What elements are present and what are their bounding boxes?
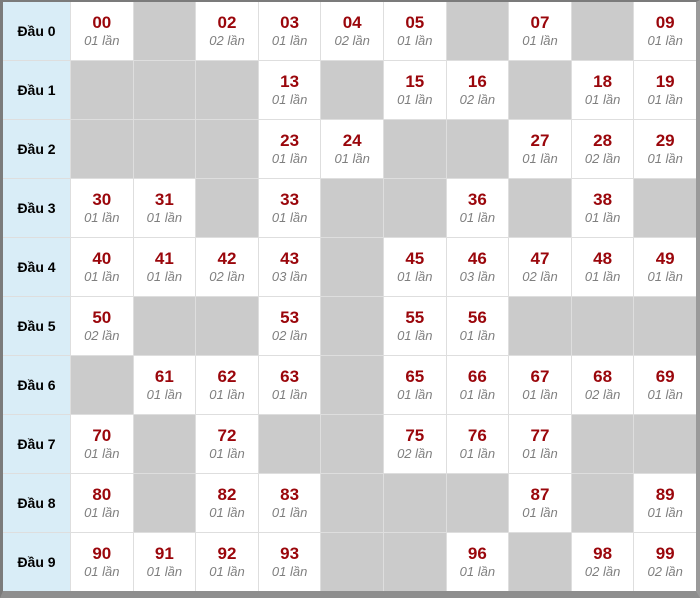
- occurrence-count: 01 lần: [585, 92, 620, 109]
- number-value: 61: [155, 366, 174, 387]
- number-cell-16: 1602 lần: [447, 61, 509, 119]
- occurrence-count: 01 lần: [209, 387, 244, 404]
- number-value: 53: [280, 307, 299, 328]
- number-value: 49: [656, 248, 675, 269]
- number-cell-90: 9001 lần: [71, 533, 133, 591]
- empty-cell: [509, 179, 571, 237]
- number-cell-82: 8201 lần: [196, 474, 258, 532]
- number-cell-46: 4603 lần: [447, 238, 509, 296]
- occurrence-count: 01 lần: [209, 564, 244, 581]
- occurrence-count: 01 lần: [397, 387, 432, 404]
- empty-cell: [321, 356, 383, 414]
- number-value: 77: [531, 425, 550, 446]
- empty-cell: [321, 179, 383, 237]
- number-cell-77: 7701 lần: [509, 415, 571, 473]
- number-value: 46: [468, 248, 487, 269]
- row-header-dau-7: Đầu 7: [3, 415, 70, 473]
- occurrence-count: 02 lần: [522, 269, 557, 286]
- empty-cell: [196, 120, 258, 178]
- occurrence-count: 01 lần: [84, 446, 119, 463]
- empty-cell: [259, 415, 321, 473]
- number-cell-76: 7601 lần: [447, 415, 509, 473]
- number-value: 05: [405, 12, 424, 33]
- number-cell-31: 3101 lần: [134, 179, 196, 237]
- number-cell-33: 3301 lần: [259, 179, 321, 237]
- number-value: 98: [593, 543, 612, 564]
- empty-cell: [196, 297, 258, 355]
- number-value: 33: [280, 189, 299, 210]
- empty-cell: [572, 415, 634, 473]
- number-cell-72: 7201 lần: [196, 415, 258, 473]
- number-value: 16: [468, 71, 487, 92]
- empty-cell: [321, 533, 383, 591]
- empty-cell: [321, 474, 383, 532]
- number-cell-98: 9802 lần: [572, 533, 634, 591]
- empty-cell: [134, 120, 196, 178]
- occurrence-count: 02 lần: [397, 446, 432, 463]
- number-value: 67: [531, 366, 550, 387]
- number-cell-91: 9101 lần: [134, 533, 196, 591]
- occurrence-count: 01 lần: [397, 269, 432, 286]
- occurrence-count: 01 lần: [522, 446, 557, 463]
- empty-cell: [71, 120, 133, 178]
- number-value: 36: [468, 189, 487, 210]
- number-value: 96: [468, 543, 487, 564]
- number-value: 38: [593, 189, 612, 210]
- empty-cell: [134, 474, 196, 532]
- occurrence-count: 02 lần: [334, 33, 369, 50]
- number-value: 92: [218, 543, 237, 564]
- occurrence-count: 02 lần: [585, 387, 620, 404]
- number-value: 31: [155, 189, 174, 210]
- number-cell-56: 5601 lần: [447, 297, 509, 355]
- number-value: 70: [92, 425, 111, 446]
- row-header-dau-6: Đầu 6: [3, 356, 70, 414]
- number-value: 66: [468, 366, 487, 387]
- empty-cell: [634, 179, 696, 237]
- occurrence-count: 01 lần: [460, 564, 495, 581]
- empty-cell: [134, 297, 196, 355]
- number-cell-02: 0202 lần: [196, 2, 258, 60]
- number-cell-61: 6101 lần: [134, 356, 196, 414]
- occurrence-count: 01 lần: [84, 210, 119, 227]
- number-cell-04: 0402 lần: [321, 2, 383, 60]
- number-cell-48: 4801 lần: [572, 238, 634, 296]
- number-cell-47: 4702 lần: [509, 238, 571, 296]
- empty-cell: [384, 474, 446, 532]
- empty-cell: [321, 238, 383, 296]
- number-cell-63: 6301 lần: [259, 356, 321, 414]
- empty-cell: [509, 61, 571, 119]
- number-cell-89: 8901 lần: [634, 474, 696, 532]
- empty-cell: [321, 415, 383, 473]
- occurrence-count: 01 lần: [522, 505, 557, 522]
- number-value: 90: [92, 543, 111, 564]
- number-value: 76: [468, 425, 487, 446]
- occurrence-count: 01 lần: [647, 269, 682, 286]
- occurrence-count: 01 lần: [522, 387, 557, 404]
- empty-cell: [321, 61, 383, 119]
- number-value: 00: [92, 12, 111, 33]
- number-value: 27: [531, 130, 550, 151]
- row-header-dau-8: Đầu 8: [3, 474, 70, 532]
- number-cell-80: 8001 lần: [71, 474, 133, 532]
- number-cell-87: 8701 lần: [509, 474, 571, 532]
- occurrence-count: 01 lần: [84, 33, 119, 50]
- number-cell-23: 2301 lần: [259, 120, 321, 178]
- occurrence-count: 01 lần: [147, 269, 182, 286]
- number-value: 15: [405, 71, 424, 92]
- occurrence-count: 01 lần: [460, 387, 495, 404]
- number-value: 50: [92, 307, 111, 328]
- empty-cell: [384, 533, 446, 591]
- number-value: 23: [280, 130, 299, 151]
- occurrence-count: 01 lần: [460, 210, 495, 227]
- row-header-dau-5: Đầu 5: [3, 297, 70, 355]
- empty-cell: [509, 533, 571, 591]
- empty-cell: [134, 415, 196, 473]
- number-cell-53: 5302 lần: [259, 297, 321, 355]
- lottery-frequency-table-frame: Đầu 00001 lần0202 lần0301 lần0402 lần050…: [0, 0, 700, 598]
- occurrence-count: 02 lần: [585, 564, 620, 581]
- number-value: 68: [593, 366, 612, 387]
- occurrence-count: 01 lần: [647, 505, 682, 522]
- number-value: 83: [280, 484, 299, 505]
- occurrence-count: 01 lần: [147, 387, 182, 404]
- number-value: 69: [656, 366, 675, 387]
- number-value: 75: [405, 425, 424, 446]
- row-header-dau-1: Đầu 1: [3, 61, 70, 119]
- number-value: 91: [155, 543, 174, 564]
- occurrence-count: 01 lần: [522, 33, 557, 50]
- empty-cell: [134, 2, 196, 60]
- number-value: 80: [92, 484, 111, 505]
- row-header-dau-2: Đầu 2: [3, 120, 70, 178]
- number-cell-66: 6601 lần: [447, 356, 509, 414]
- number-cell-93: 9301 lần: [259, 533, 321, 591]
- row-header-dau-4: Đầu 4: [3, 238, 70, 296]
- occurrence-count: 01 lần: [272, 505, 307, 522]
- number-cell-92: 9201 lần: [196, 533, 258, 591]
- number-value: 19: [656, 71, 675, 92]
- number-cell-45: 4501 lần: [384, 238, 446, 296]
- occurrence-count: 01 lần: [585, 269, 620, 286]
- empty-cell: [447, 120, 509, 178]
- occurrence-count: 01 lần: [209, 446, 244, 463]
- number-cell-00: 0001 lần: [71, 2, 133, 60]
- number-cell-07: 0701 lần: [509, 2, 571, 60]
- number-value: 02: [218, 12, 237, 33]
- occurrence-count: 01 lần: [272, 151, 307, 168]
- number-cell-30: 3001 lần: [71, 179, 133, 237]
- row-header-dau-0: Đầu 0: [3, 2, 70, 60]
- occurrence-count: 01 lần: [272, 92, 307, 109]
- number-value: 40: [92, 248, 111, 269]
- occurrence-count: 02 lần: [272, 328, 307, 345]
- number-value: 87: [531, 484, 550, 505]
- number-value: 45: [405, 248, 424, 269]
- empty-cell: [384, 179, 446, 237]
- number-cell-05: 0501 lần: [384, 2, 446, 60]
- occurrence-count: 01 lần: [272, 210, 307, 227]
- empty-cell: [634, 415, 696, 473]
- occurrence-count: 01 lần: [84, 564, 119, 581]
- number-cell-65: 6501 lần: [384, 356, 446, 414]
- number-cell-18: 1801 lần: [572, 61, 634, 119]
- occurrence-count: 01 lần: [147, 210, 182, 227]
- empty-cell: [509, 297, 571, 355]
- occurrence-count: 01 lần: [272, 33, 307, 50]
- occurrence-count: 01 lần: [647, 151, 682, 168]
- number-cell-36: 3601 lần: [447, 179, 509, 237]
- number-cell-68: 6802 lần: [572, 356, 634, 414]
- number-cell-29: 2901 lần: [634, 120, 696, 178]
- number-value: 28: [593, 130, 612, 151]
- number-cell-50: 5002 lần: [71, 297, 133, 355]
- number-value: 41: [155, 248, 174, 269]
- number-cell-83: 8301 lần: [259, 474, 321, 532]
- number-cell-41: 4101 lần: [134, 238, 196, 296]
- number-value: 62: [218, 366, 237, 387]
- empty-cell: [71, 356, 133, 414]
- number-cell-55: 5501 lần: [384, 297, 446, 355]
- number-value: 55: [405, 307, 424, 328]
- occurrence-count: 01 lần: [647, 92, 682, 109]
- number-cell-24: 2401 lần: [321, 120, 383, 178]
- number-value: 89: [656, 484, 675, 505]
- number-value: 43: [280, 248, 299, 269]
- number-cell-62: 6201 lần: [196, 356, 258, 414]
- occurrence-count: 02 lần: [84, 328, 119, 345]
- empty-cell: [572, 2, 634, 60]
- occurrence-count: 01 lần: [84, 269, 119, 286]
- occurrence-count: 01 lần: [334, 151, 369, 168]
- empty-cell: [572, 474, 634, 532]
- empty-cell: [572, 297, 634, 355]
- occurrence-count: 02 lần: [209, 33, 244, 50]
- number-cell-75: 7502 lần: [384, 415, 446, 473]
- occurrence-count: 02 lần: [647, 564, 682, 581]
- row-header-dau-3: Đầu 3: [3, 179, 70, 237]
- number-value: 72: [218, 425, 237, 446]
- number-value: 18: [593, 71, 612, 92]
- number-cell-70: 7001 lần: [71, 415, 133, 473]
- number-cell-38: 3801 lần: [572, 179, 634, 237]
- number-value: 65: [405, 366, 424, 387]
- occurrence-count: 01 lần: [147, 564, 182, 581]
- occurrence-count: 01 lần: [397, 92, 432, 109]
- occurrence-count: 01 lần: [84, 505, 119, 522]
- number-cell-67: 6701 lần: [509, 356, 571, 414]
- occurrence-count: 01 lần: [397, 328, 432, 345]
- number-cell-99: 9902 lần: [634, 533, 696, 591]
- occurrence-count: 02 lần: [209, 269, 244, 286]
- occurrence-count: 02 lần: [585, 151, 620, 168]
- occurrence-count: 01 lần: [647, 33, 682, 50]
- number-value: 56: [468, 307, 487, 328]
- empty-cell: [196, 179, 258, 237]
- number-value: 99: [656, 543, 675, 564]
- number-value: 29: [656, 130, 675, 151]
- number-cell-27: 2701 lần: [509, 120, 571, 178]
- number-cell-28: 2802 lần: [572, 120, 634, 178]
- number-value: 24: [343, 130, 362, 151]
- number-value: 47: [531, 248, 550, 269]
- empty-cell: [447, 474, 509, 532]
- empty-cell: [384, 120, 446, 178]
- occurrence-count: 01 lần: [209, 505, 244, 522]
- empty-cell: [71, 61, 133, 119]
- number-value: 04: [343, 12, 362, 33]
- number-value: 82: [218, 484, 237, 505]
- occurrence-count: 01 lần: [585, 210, 620, 227]
- number-cell-96: 9601 lần: [447, 533, 509, 591]
- number-cell-15: 1501 lần: [384, 61, 446, 119]
- empty-cell: [447, 2, 509, 60]
- row-header-dau-9: Đầu 9: [3, 533, 70, 591]
- occurrence-count: 01 lần: [647, 387, 682, 404]
- occurrence-count: 01 lần: [460, 446, 495, 463]
- occurrence-count: 03 lần: [272, 269, 307, 286]
- empty-cell: [196, 61, 258, 119]
- number-cell-19: 1901 lần: [634, 61, 696, 119]
- occurrence-count: 01 lần: [397, 33, 432, 50]
- number-value: 03: [280, 12, 299, 33]
- number-value: 48: [593, 248, 612, 269]
- occurrence-count: 02 lần: [460, 92, 495, 109]
- number-value: 13: [280, 71, 299, 92]
- occurrence-count: 01 lần: [272, 387, 307, 404]
- empty-cell: [321, 297, 383, 355]
- empty-cell: [634, 297, 696, 355]
- occurrence-count: 03 lần: [460, 269, 495, 286]
- number-cell-13: 1301 lần: [259, 61, 321, 119]
- number-value: 93: [280, 543, 299, 564]
- number-cell-03: 0301 lần: [259, 2, 321, 60]
- number-value: 42: [218, 248, 237, 269]
- occurrence-count: 01 lần: [460, 328, 495, 345]
- occurrence-count: 01 lần: [272, 564, 307, 581]
- number-value: 07: [531, 12, 550, 33]
- number-cell-43: 4303 lần: [259, 238, 321, 296]
- number-value: 09: [656, 12, 675, 33]
- number-cell-49: 4901 lần: [634, 238, 696, 296]
- number-cell-09: 0901 lần: [634, 2, 696, 60]
- lottery-frequency-table: Đầu 00001 lần0202 lần0301 lần0402 lần050…: [3, 2, 696, 591]
- number-cell-42: 4202 lần: [196, 238, 258, 296]
- number-cell-69: 6901 lần: [634, 356, 696, 414]
- occurrence-count: 01 lần: [522, 151, 557, 168]
- number-cell-40: 4001 lần: [71, 238, 133, 296]
- number-value: 30: [92, 189, 111, 210]
- number-value: 63: [280, 366, 299, 387]
- empty-cell: [134, 61, 196, 119]
